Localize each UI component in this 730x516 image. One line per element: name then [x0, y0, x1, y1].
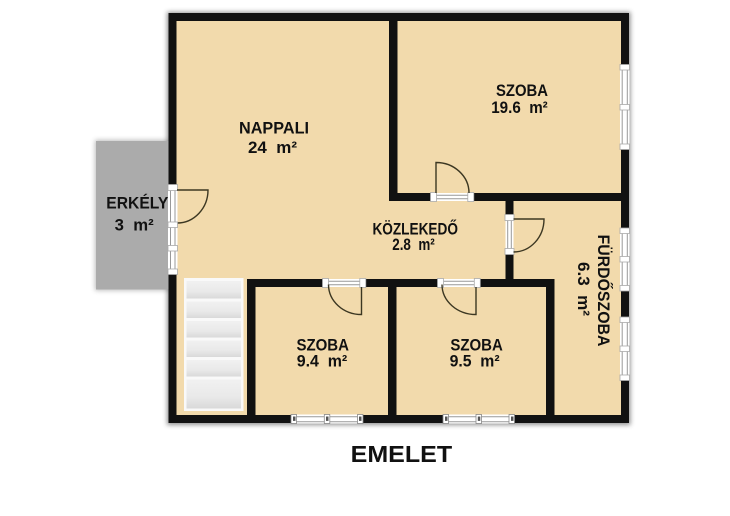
svg-text:ERKÉLY: ERKÉLY: [106, 194, 168, 213]
svg-text:24 m²: 24 m²: [248, 139, 298, 157]
svg-text:6.3 m²: 6.3 m²: [574, 262, 592, 317]
svg-text:19.6 m²: 19.6 m²: [491, 99, 548, 117]
svg-text:NAPPALI: NAPPALI: [239, 120, 309, 138]
svg-text:FÜRDŐSZOBA: FÜRDŐSZOBA: [594, 235, 613, 347]
svg-text:2.8 m²: 2.8 m²: [392, 236, 435, 254]
svg-text:3 m²: 3 m²: [115, 216, 155, 234]
svg-text:9.4 m²: 9.4 m²: [297, 353, 348, 371]
svg-text:SZOBA: SZOBA: [496, 82, 548, 100]
svg-text:EMELET: EMELET: [351, 441, 453, 467]
svg-text:9.5 m²: 9.5 m²: [450, 353, 501, 371]
